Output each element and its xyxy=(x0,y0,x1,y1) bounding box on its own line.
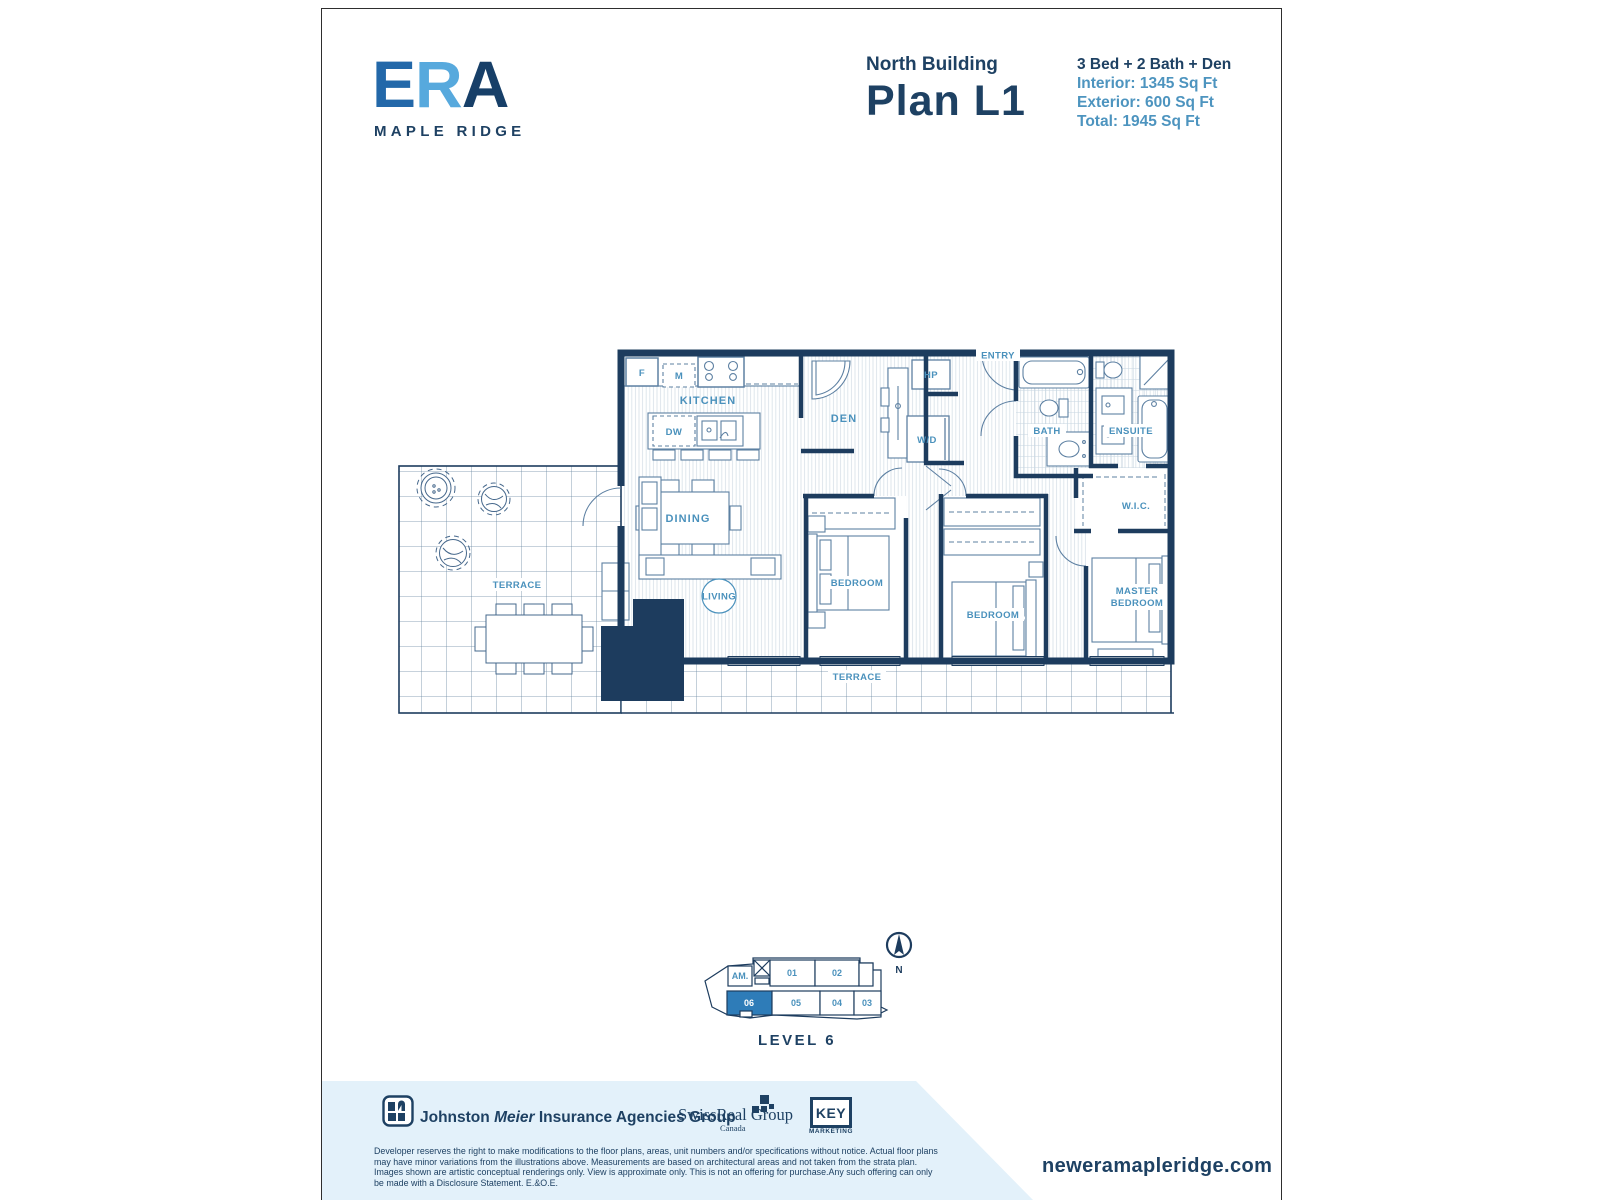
living-label: LIVING xyxy=(702,592,736,603)
jm-text-1: Johnston xyxy=(420,1109,494,1126)
compass: N xyxy=(884,929,914,977)
keyplan-label-01: 01 xyxy=(787,968,797,978)
spec-summary: 3 Bed + 2 Bath + Den xyxy=(1077,55,1231,74)
keyplan-elevator-lobby xyxy=(755,978,769,984)
terrace-bottom-floor xyxy=(621,661,1171,713)
swissreal-icon xyxy=(751,1095,775,1115)
keyplan-stairs xyxy=(859,963,873,986)
terrace-bottom-label: TERRACE xyxy=(833,672,882,683)
kitchen-label: KITCHEN xyxy=(680,395,737,407)
bedroom2-label: BEDROOM xyxy=(967,610,1019,621)
keyplan-label-06: 06 xyxy=(744,998,754,1008)
swissreal-canada-label: Canada xyxy=(720,1123,746,1133)
johnston-meier-icon xyxy=(382,1095,414,1127)
washer-dryer-label: W/D xyxy=(917,435,937,446)
disclaimer-text: Developer reserves the right to make mod… xyxy=(374,1146,940,1188)
website-link[interactable]: neweramapleridge.com xyxy=(1042,1155,1272,1178)
plan-title: Plan L1 xyxy=(866,77,1026,126)
compass-north-label: N xyxy=(895,965,902,976)
plan-specs: 3 Bed + 2 Bath + Den Interior: 1345 Sq F… xyxy=(1077,55,1231,131)
keyplan-label-04: 04 xyxy=(832,998,842,1008)
jm-text-2: Meier xyxy=(494,1109,535,1126)
microwave-label: M xyxy=(675,371,683,382)
keyplan-unit-06-notch xyxy=(740,1011,752,1017)
keyplan-diagram: AM. 01 02 06 05 04 03 xyxy=(702,951,902,1031)
keyplan-label-am: AM. xyxy=(732,971,749,981)
era-logo-letter-a: A xyxy=(462,47,509,121)
key-marketing-key: KEY xyxy=(816,1105,846,1121)
brochure-page: ERA MAPLE RIDGE North Building Plan L1 3… xyxy=(321,8,1282,1200)
keyplan-label-03: 03 xyxy=(862,998,872,1008)
terrace-left-label: TERRACE xyxy=(493,580,542,591)
level-label: LEVEL 6 xyxy=(722,1032,872,1049)
swissreal-logo: SwissReal Group xyxy=(678,1105,793,1125)
ensuite-label: ENSUITE xyxy=(1109,426,1153,437)
master-label-line2: BEDROOM xyxy=(1111,598,1163,609)
den-label: DEN xyxy=(831,413,858,425)
key-marketing-sub: MARKETING xyxy=(809,1128,853,1135)
era-logo-letter-r: R xyxy=(415,47,462,121)
era-logo-letter-e: E xyxy=(372,47,415,121)
wic-label: W.I.C. xyxy=(1122,501,1150,512)
building-name: North Building xyxy=(866,54,998,76)
bedroom1-furniture xyxy=(807,498,895,628)
heat-pump-label: HP xyxy=(924,370,938,381)
key-marketing-icon: KEY xyxy=(810,1097,852,1128)
spec-interior: Interior: 1345 Sq Ft xyxy=(1077,74,1231,93)
terrace-table xyxy=(475,604,593,674)
keyplan-label-02: 02 xyxy=(832,968,842,978)
keyplan-label-05: 05 xyxy=(791,998,801,1008)
bedroom1-label: BEDROOM xyxy=(831,578,883,589)
master-label-line1: MASTER xyxy=(1116,586,1159,597)
spec-total: Total: 1945 Sq Ft xyxy=(1077,112,1231,131)
spec-exterior: Exterior: 600 Sq Ft xyxy=(1077,93,1231,112)
era-logo: ERA xyxy=(372,51,508,117)
floorplan-drawing: ENTRY KITCHEN DEN DINING LIVING BATH ENS… xyxy=(396,346,1176,716)
dining-label: DINING xyxy=(665,513,710,525)
entry-label: ENTRY xyxy=(981,351,1015,362)
fridge-label: F xyxy=(639,368,645,379)
era-logo-subtitle: MAPLE RIDGE xyxy=(374,123,525,140)
dishwasher-label: DW xyxy=(666,427,683,438)
screenshot-stage: ERA MAPLE RIDGE North Building Plan L1 3… xyxy=(0,0,1600,1200)
bath-label: BATH xyxy=(1033,426,1060,437)
